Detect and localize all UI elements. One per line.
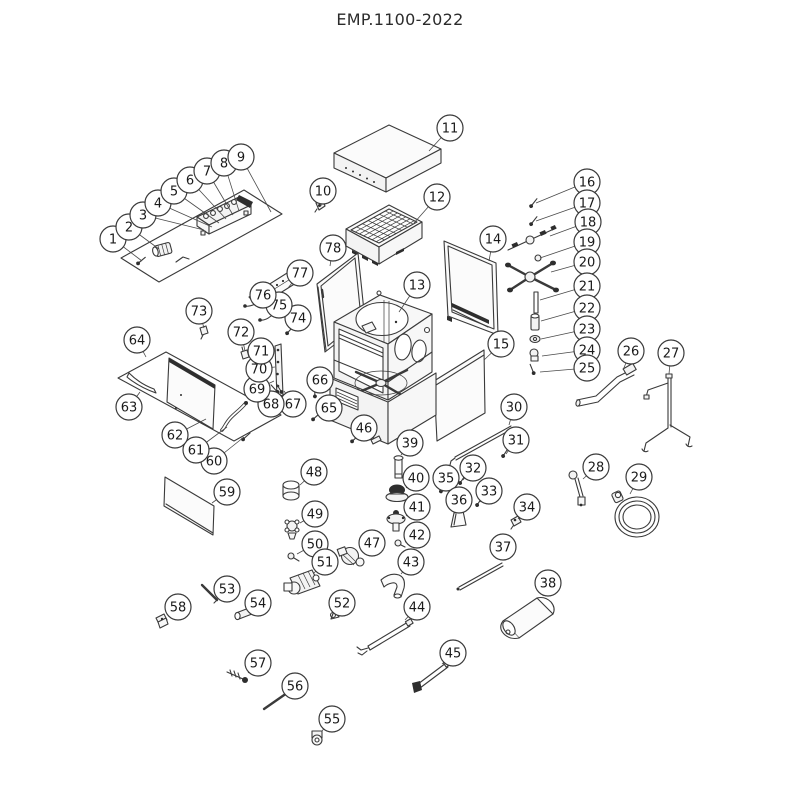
motor-part bbox=[151, 242, 172, 257]
part-balloon-28: 28 bbox=[583, 454, 609, 480]
svg-text:32: 32 bbox=[465, 462, 482, 477]
svg-text:72: 72 bbox=[233, 326, 250, 341]
svg-text:13: 13 bbox=[409, 279, 426, 294]
part-balloon-63: 63 bbox=[116, 394, 142, 420]
svg-text:37: 37 bbox=[495, 541, 512, 556]
svg-text:78: 78 bbox=[325, 242, 342, 257]
flange-fitting-41 bbox=[387, 510, 405, 531]
svg-text:45: 45 bbox=[445, 647, 462, 662]
svg-text:59: 59 bbox=[219, 486, 236, 501]
svg-text:20: 20 bbox=[579, 256, 596, 271]
svg-text:69: 69 bbox=[249, 383, 266, 398]
svg-text:4: 4 bbox=[154, 197, 162, 212]
svg-text:70: 70 bbox=[251, 363, 268, 378]
part-balloon-45: 45 bbox=[440, 640, 466, 666]
part-balloon-64: 64 bbox=[124, 327, 150, 353]
wire-76 bbox=[243, 304, 255, 308]
part-balloon-27: 27 bbox=[658, 340, 684, 366]
svg-text:64: 64 bbox=[129, 334, 146, 349]
svg-text:30: 30 bbox=[506, 401, 523, 416]
rinse-pipe-45 bbox=[412, 660, 451, 693]
part-balloon-56: 56 bbox=[282, 673, 308, 699]
svg-text:65: 65 bbox=[321, 402, 338, 417]
svg-text:16: 16 bbox=[579, 176, 596, 191]
part-balloon-31: 31 bbox=[503, 427, 529, 453]
kick-panel bbox=[164, 477, 214, 535]
svg-text:18: 18 bbox=[580, 216, 597, 231]
svg-text:9: 9 bbox=[237, 151, 245, 166]
part-balloon-59: 59 bbox=[214, 479, 240, 505]
part-balloon-15: 15 bbox=[488, 331, 514, 357]
cup-48 bbox=[283, 481, 299, 500]
rod-56 bbox=[264, 693, 287, 709]
exploded-parts-diagram: 1234567891011121314151617181920212223242… bbox=[0, 0, 800, 800]
svg-text:12: 12 bbox=[429, 191, 446, 206]
svg-text:53: 53 bbox=[219, 583, 236, 598]
svg-text:60: 60 bbox=[206, 455, 223, 470]
part-balloon-65: 65 bbox=[316, 395, 342, 421]
part-balloon-46: 46 bbox=[351, 415, 377, 441]
part-balloon-71: 71 bbox=[248, 338, 274, 364]
side-panel bbox=[434, 350, 485, 441]
part-balloon-42: 42 bbox=[404, 522, 430, 548]
svg-text:61: 61 bbox=[188, 444, 205, 459]
part-balloon-25: 25 bbox=[574, 355, 600, 381]
impeller-49 bbox=[285, 520, 299, 539]
part-balloon-49: 49 bbox=[302, 501, 328, 527]
svg-text:33: 33 bbox=[481, 485, 498, 500]
svg-text:31: 31 bbox=[508, 434, 525, 449]
rail-strip bbox=[275, 344, 283, 397]
svg-text:57: 57 bbox=[250, 657, 267, 672]
svg-text:5: 5 bbox=[170, 185, 178, 200]
part-balloon-10: 10 bbox=[310, 178, 336, 204]
part-balloon-39: 39 bbox=[397, 430, 423, 456]
svg-text:27: 27 bbox=[663, 347, 680, 362]
svg-text:49: 49 bbox=[307, 508, 324, 523]
door-hose bbox=[222, 401, 248, 430]
svg-text:41: 41 bbox=[409, 501, 426, 516]
svg-text:63: 63 bbox=[121, 401, 138, 416]
svg-text:38: 38 bbox=[540, 577, 557, 592]
caster-55 bbox=[312, 731, 322, 745]
elbow-hose-43 bbox=[381, 574, 404, 598]
svg-text:77: 77 bbox=[292, 267, 309, 282]
svg-text:21: 21 bbox=[579, 280, 596, 295]
part-balloon-77: 77 bbox=[287, 260, 313, 286]
part-balloon-33: 33 bbox=[476, 478, 502, 504]
svg-text:66: 66 bbox=[312, 374, 329, 389]
svg-text:43: 43 bbox=[403, 556, 420, 571]
svg-text:51: 51 bbox=[317, 556, 334, 571]
part-balloon-13: 13 bbox=[404, 272, 430, 298]
pump-motor-51 bbox=[284, 570, 320, 594]
svg-text:35: 35 bbox=[438, 472, 455, 487]
part-balloon-58: 58 bbox=[165, 594, 191, 620]
svg-text:34: 34 bbox=[519, 501, 536, 516]
svg-text:55: 55 bbox=[324, 713, 341, 728]
part-balloon-73: 73 bbox=[186, 298, 212, 324]
wire-75 bbox=[258, 316, 271, 322]
part-balloon-30: 30 bbox=[501, 394, 527, 420]
part-balloon-52: 52 bbox=[329, 590, 355, 616]
svg-text:1: 1 bbox=[109, 233, 117, 248]
part-balloon-78: 78 bbox=[320, 235, 346, 261]
part-balloon-55: 55 bbox=[319, 706, 345, 732]
svg-text:25: 25 bbox=[579, 362, 596, 377]
svg-text:8: 8 bbox=[220, 157, 228, 172]
wash-pump-47 bbox=[337, 547, 364, 566]
svg-text:46: 46 bbox=[356, 422, 373, 437]
part-balloon-36: 36 bbox=[446, 487, 472, 513]
door-inner-panel bbox=[167, 358, 215, 429]
wash-pipe-44 bbox=[357, 619, 413, 655]
svg-text:73: 73 bbox=[191, 305, 208, 320]
svg-text:26: 26 bbox=[623, 345, 640, 360]
part-balloon-44: 44 bbox=[404, 594, 430, 620]
small-fitting-42 bbox=[395, 540, 405, 547]
part-balloon-47: 47 bbox=[359, 530, 385, 556]
part-balloon-38: 38 bbox=[535, 570, 561, 596]
svg-text:29: 29 bbox=[631, 471, 648, 486]
hinge-58 bbox=[156, 614, 168, 628]
curved-strip bbox=[127, 373, 156, 393]
svg-text:19: 19 bbox=[579, 236, 596, 251]
svg-text:52: 52 bbox=[334, 597, 351, 612]
svg-text:42: 42 bbox=[409, 529, 426, 544]
svg-text:23: 23 bbox=[579, 323, 596, 338]
svg-text:76: 76 bbox=[255, 289, 272, 304]
svg-text:47: 47 bbox=[364, 537, 381, 552]
part-balloon-57: 57 bbox=[245, 650, 271, 676]
diagram-page: EMP.1100-2022 bbox=[0, 0, 800, 800]
svg-text:14: 14 bbox=[485, 233, 502, 248]
svg-text:54: 54 bbox=[250, 597, 267, 612]
part-balloon-32: 32 bbox=[460, 455, 486, 481]
part-balloon-14: 14 bbox=[480, 226, 506, 252]
upper-spray-arm bbox=[508, 225, 557, 250]
part-balloon-54: 54 bbox=[245, 590, 271, 616]
part-balloon-34: 34 bbox=[514, 494, 540, 520]
part-balloon-9: 9 bbox=[228, 144, 254, 170]
svg-text:56: 56 bbox=[287, 680, 304, 695]
svg-text:40: 40 bbox=[408, 472, 425, 487]
svg-text:15: 15 bbox=[493, 338, 510, 353]
part-balloon-26: 26 bbox=[618, 338, 644, 364]
part-balloon-76: 76 bbox=[250, 282, 276, 308]
svg-text:11: 11 bbox=[442, 122, 459, 137]
svg-text:44: 44 bbox=[409, 601, 426, 616]
part-balloon-66: 66 bbox=[307, 367, 333, 393]
lid-panel bbox=[334, 125, 441, 192]
lower-spray-arm bbox=[505, 261, 559, 293]
part-balloon-72: 72 bbox=[228, 319, 254, 345]
svg-text:48: 48 bbox=[306, 466, 323, 481]
stand-frame bbox=[642, 374, 692, 452]
svg-text:28: 28 bbox=[588, 461, 605, 476]
part-balloon-20: 20 bbox=[574, 249, 600, 275]
part-balloon-40: 40 bbox=[403, 465, 429, 491]
svg-text:7: 7 bbox=[203, 165, 211, 180]
svg-text:10: 10 bbox=[315, 185, 332, 200]
sensor-probe bbox=[569, 471, 585, 506]
part-balloon-37: 37 bbox=[490, 534, 516, 560]
svg-text:71: 71 bbox=[253, 345, 270, 360]
svg-text:58: 58 bbox=[170, 601, 187, 616]
drain-fitting-40 bbox=[386, 485, 408, 502]
part-balloon-43: 43 bbox=[398, 549, 424, 575]
svg-text:62: 62 bbox=[167, 429, 184, 444]
svg-text:36: 36 bbox=[451, 494, 468, 509]
svg-text:22: 22 bbox=[579, 302, 596, 317]
svg-text:3: 3 bbox=[139, 209, 147, 224]
svg-text:67: 67 bbox=[285, 398, 302, 413]
part-balloon-11: 11 bbox=[437, 115, 463, 141]
part-balloon-29: 29 bbox=[626, 464, 652, 490]
coiled-hose bbox=[611, 490, 659, 537]
part-balloon-62: 62 bbox=[162, 422, 188, 448]
svg-text:6: 6 bbox=[186, 174, 194, 189]
boiler-cylinder bbox=[500, 598, 554, 639]
long-rod-37 bbox=[457, 563, 504, 591]
part-balloon-51: 51 bbox=[312, 549, 338, 575]
part-balloon-53: 53 bbox=[214, 576, 240, 602]
part-balloon-12: 12 bbox=[424, 184, 450, 210]
standpipe-39 bbox=[394, 456, 403, 478]
svg-text:39: 39 bbox=[402, 437, 419, 452]
part-balloon-41: 41 bbox=[404, 494, 430, 520]
part-balloon-48: 48 bbox=[301, 459, 327, 485]
svg-text:74: 74 bbox=[290, 312, 307, 327]
spring-screw-57 bbox=[227, 670, 248, 683]
